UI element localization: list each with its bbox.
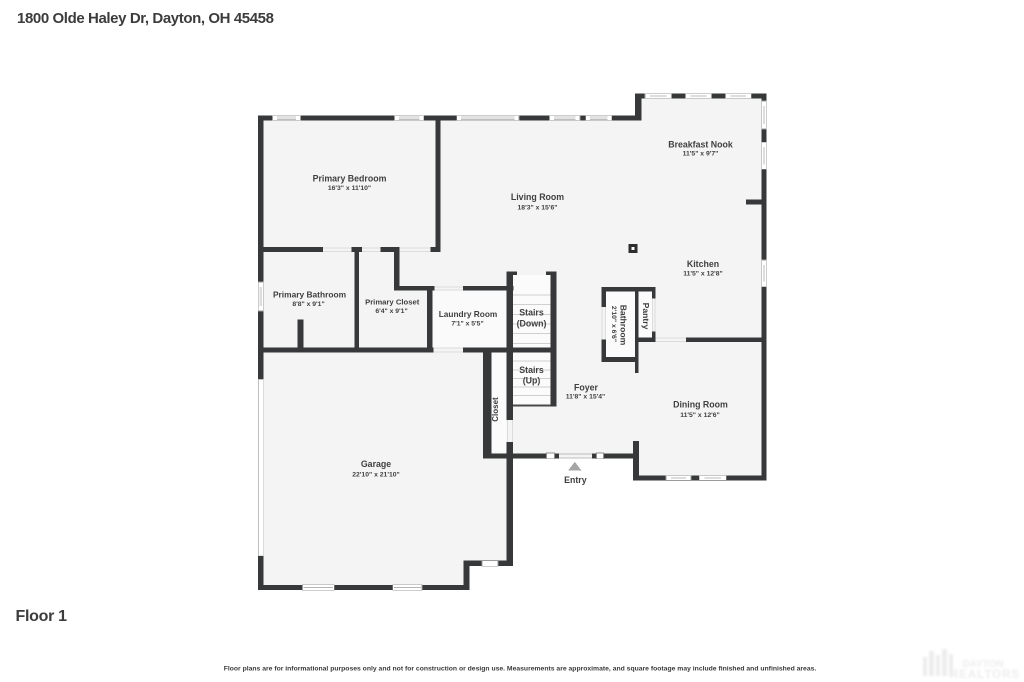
svg-text:Floor plans are for informatio: Floor plans are for informational purpos… [224,666,817,673]
svg-text:11'8" x 15'4": 11'8" x 15'4" [566,394,606,401]
svg-text:Closet: Closet [491,397,500,422]
svg-text:Pantry: Pantry [641,303,651,330]
svg-text:22'10" x 21'10": 22'10" x 21'10" [352,472,399,479]
svg-text:16'3" x 11'10": 16'3" x 11'10" [328,185,371,192]
svg-text:11'5" x 12'8": 11'5" x 12'8" [683,271,723,278]
svg-text:1800 Olde Haley Dr, Dayton, OH: 1800 Olde Haley Dr, Dayton, OH 45458 [17,10,274,27]
svg-text:Laundry Room: Laundry Room [439,309,498,319]
svg-text:Kitchen: Kitchen [687,259,719,269]
svg-text:11'5" x 12'6": 11'5" x 12'6" [680,412,720,419]
svg-text:Living Room: Living Room [511,192,564,202]
svg-text:Bathroom: Bathroom [619,305,629,346]
svg-text:Primary Bedroom: Primary Bedroom [313,173,387,183]
svg-text:Floor 1: Floor 1 [16,608,68,625]
svg-text:Garage: Garage [361,459,391,469]
svg-text:REALTORS: REALTORS [950,669,1020,681]
svg-text:Dining Room: Dining Room [673,399,728,409]
svg-text:Primary Closet: Primary Closet [365,298,420,307]
svg-text:Stairs: Stairs [519,307,544,317]
svg-text:Primary Bathroom: Primary Bathroom [273,290,346,300]
svg-text:Foyer: Foyer [574,383,599,393]
svg-text:8'8" x 9'1": 8'8" x 9'1" [292,301,324,308]
svg-text:2'10" x 6'6": 2'10" x 6'6" [610,306,617,342]
svg-text:Breakfast Nook: Breakfast Nook [668,139,733,149]
svg-text:(Down): (Down) [517,319,547,329]
svg-text:7'1" x 5'5": 7'1" x 5'5" [451,321,483,328]
svg-text:6'4" x 9'1": 6'4" x 9'1" [375,308,407,315]
svg-text:18'3" x 15'6": 18'3" x 15'6" [518,205,558,212]
svg-text:Stairs: Stairs [519,365,544,375]
svg-text:(Up): (Up) [523,376,541,386]
svg-text:11'5" x 9'7": 11'5" x 9'7" [683,151,719,158]
svg-text:Entry: Entry [564,475,587,485]
